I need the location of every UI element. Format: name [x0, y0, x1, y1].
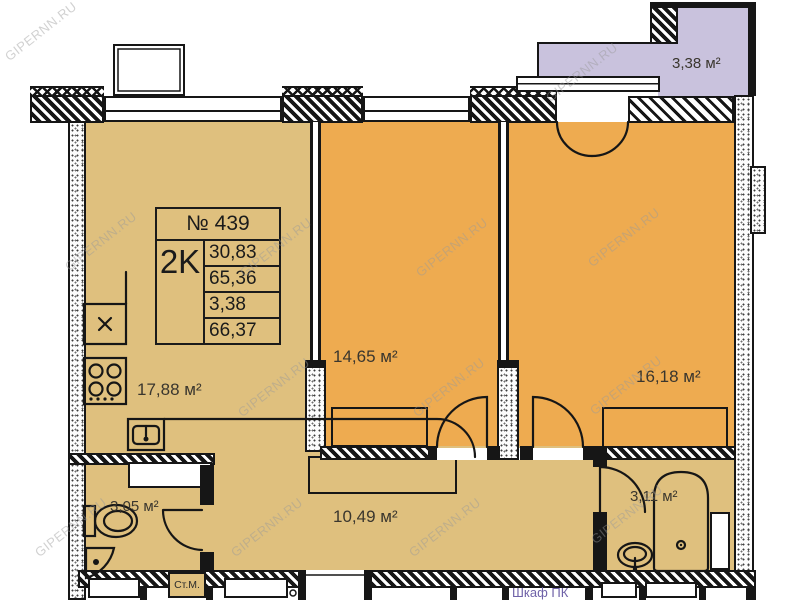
room2-door-arc: [533, 397, 583, 447]
stove-burner: [108, 365, 121, 378]
bathroom2-faucet-base: [633, 567, 637, 571]
stove-burner: [90, 383, 103, 396]
closet-label: Шкаф ПК: [512, 585, 568, 600]
room1-door-arc: [437, 397, 487, 447]
stove: [84, 358, 126, 404]
kitchen-faucet-base: [144, 437, 149, 442]
total-area-value: 66,37: [205, 317, 279, 343]
bathtub-drain-dot: [680, 544, 682, 546]
stove-knob: [96, 397, 99, 400]
bathroom1-area-label: 3,05 м²: [110, 498, 159, 515]
bathtub: [654, 472, 708, 571]
kitchen-zone-line: [164, 419, 475, 457]
washing-machine-box: Ст.М.: [168, 572, 206, 598]
cabinet-x-mark: [99, 318, 111, 330]
corner-sink-faucet: [93, 559, 99, 565]
apartment-number: № 439: [155, 207, 281, 241]
stove-knob: [103, 397, 106, 400]
stove-knob: [110, 397, 113, 400]
balcony-door-arc: [592, 122, 628, 156]
balcony-area-value: 3,38: [205, 291, 279, 317]
door-knob-dot: [290, 590, 296, 596]
bathroom1-door-arc: [163, 510, 202, 550]
vent-shaft-inner: [118, 49, 180, 91]
balcony-area-label: 3,38 м²: [672, 55, 721, 72]
floor-plan: Ст.М. № 439 2K 30,83 65,36 3,38 66,37 17…: [0, 0, 800, 600]
kitchen-area-label: 17,88 м²: [137, 380, 202, 400]
stove-burner: [108, 383, 121, 396]
corner-sink: [86, 548, 114, 578]
balcony-door-arc: [557, 122, 592, 156]
apartment-info-table: № 439 2K 30,83 65,36 3,38 66,37: [155, 207, 281, 345]
apartment-type: 2K: [157, 241, 203, 343]
room1-area-label: 14,65 м²: [333, 347, 398, 367]
hallway-area-label: 10,49 м²: [333, 507, 398, 527]
washing-machine-label: Ст.М.: [174, 579, 200, 591]
stove-burner: [90, 365, 103, 378]
stove-knob: [89, 397, 92, 400]
